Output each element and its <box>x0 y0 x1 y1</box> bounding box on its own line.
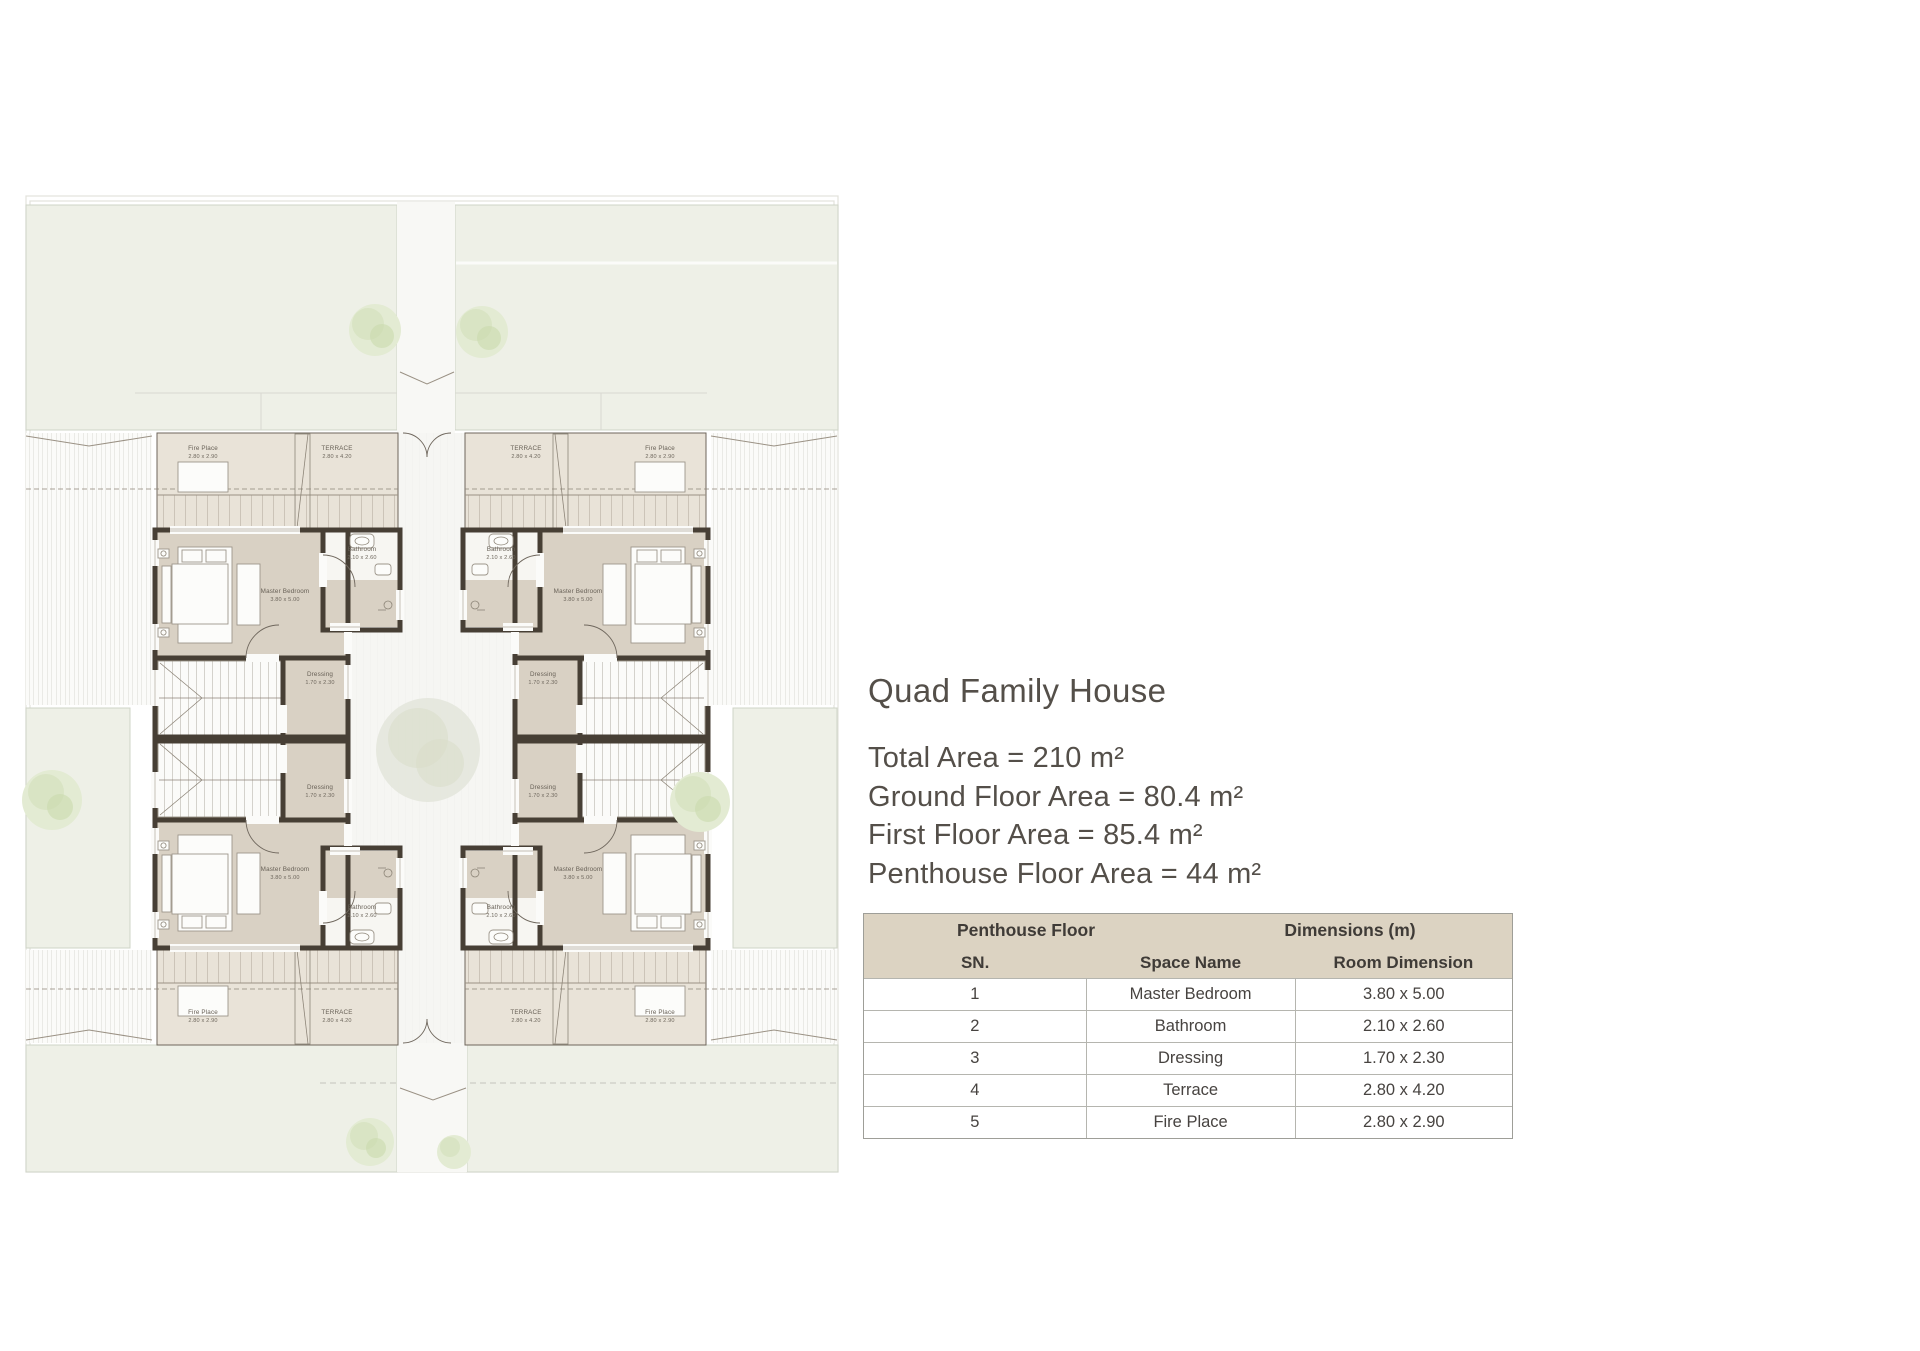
col-header-space-name: Space Name <box>1086 953 1295 973</box>
cell-dim: 2.80 x 2.90 <box>1295 1107 1512 1138</box>
ground-floor-area: Ground Floor Area = 80.4 m² <box>868 778 1261 817</box>
tree-icon <box>376 698 480 802</box>
cell-sn: 3 <box>864 1049 1086 1068</box>
tree-icon <box>22 770 82 830</box>
floor-plan: Fire Place2.80 x 2.90TERRACE2.80 x 4.20B… <box>20 160 845 1180</box>
cell-space: Master Bedroom <box>1086 979 1295 1010</box>
table-row: 3 Dressing 1.70 x 2.30 <box>864 1042 1512 1074</box>
table-row: 5 Fire Place 2.80 x 2.90 <box>864 1106 1512 1138</box>
tree-icon <box>349 304 401 356</box>
table-column-headers: SN. Space Name Room Dimension <box>864 947 1512 978</box>
cell-sn: 2 <box>864 1017 1086 1036</box>
page-title: Quad Family House <box>868 672 1166 710</box>
cell-sn: 4 <box>864 1081 1086 1100</box>
group-header-dimensions: Dimensions (m) <box>1188 920 1512 941</box>
cell-space: Terrace <box>1086 1075 1295 1106</box>
cell-sn: 1 <box>864 985 1086 1004</box>
group-header-floor: Penthouse Floor <box>864 920 1188 941</box>
dimensions-table: Penthouse Floor Dimensions (m) SN. Space… <box>863 913 1513 1139</box>
table-row: 1 Master Bedroom 3.80 x 5.00 <box>864 978 1512 1010</box>
tree-icon <box>437 1135 471 1169</box>
area-summary: Total Area = 210 m² Ground Floor Area = … <box>868 739 1261 893</box>
cell-dim: 1.70 x 2.30 <box>1295 1043 1512 1074</box>
col-header-room-dimension: Room Dimension <box>1295 953 1512 973</box>
table-row: 4 Terrace 2.80 x 4.20 <box>864 1074 1512 1106</box>
col-header-sn: SN. <box>864 953 1086 973</box>
first-floor-area: First Floor Area = 85.4 m² <box>868 816 1261 855</box>
table-row: 2 Bathroom 2.10 x 2.60 <box>864 1010 1512 1042</box>
cell-space: Bathroom <box>1086 1011 1295 1042</box>
table-group-header: Penthouse Floor Dimensions (m) <box>864 914 1512 947</box>
cell-dim: 3.80 x 5.00 <box>1295 979 1512 1010</box>
tree-icon <box>346 1118 394 1166</box>
cell-dim: 2.80 x 4.20 <box>1295 1075 1512 1106</box>
penthouse-floor-area: Penthouse Floor Area = 44 m² <box>868 855 1261 894</box>
cell-space: Fire Place <box>1086 1107 1295 1138</box>
cell-space: Dressing <box>1086 1043 1295 1074</box>
total-area: Total Area = 210 m² <box>868 739 1261 778</box>
tree-icon <box>456 306 508 358</box>
tree-icon <box>670 772 730 832</box>
cell-dim: 2.10 x 2.60 <box>1295 1011 1512 1042</box>
cell-sn: 5 <box>864 1113 1086 1132</box>
